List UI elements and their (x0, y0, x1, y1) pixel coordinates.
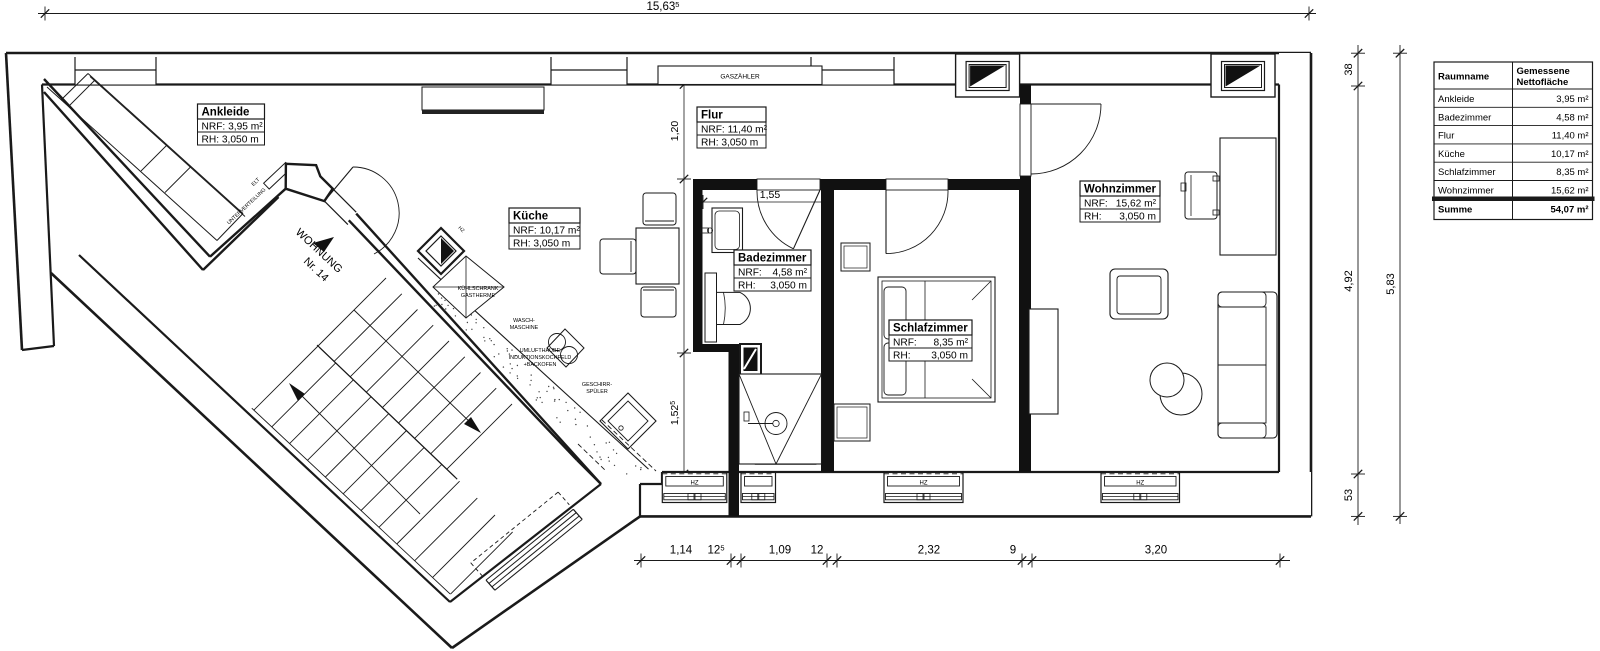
svg-text:Küche: Küche (513, 211, 548, 223)
svg-text:Wohnzimmer: Wohnzimmer (1084, 184, 1157, 196)
svg-text:+BACKOFEN: +BACKOFEN (524, 362, 557, 368)
svg-text:1,55: 1,55 (760, 189, 781, 201)
svg-text:Schlafzimmer: Schlafzimmer (893, 323, 968, 335)
svg-text:15,62 m²: 15,62 m² (1551, 186, 1589, 197)
svg-text:3,050 m: 3,050 m (1119, 212, 1156, 223)
svg-text:5,83: 5,83 (1385, 273, 1397, 294)
svg-text:NRF:: NRF: (893, 338, 917, 349)
svg-text:RH:: RH: (738, 281, 756, 292)
svg-text:Ankleide: Ankleide (202, 107, 250, 119)
svg-text:MASCHINE: MASCHINE (510, 325, 539, 331)
svg-text:38: 38 (1343, 63, 1355, 75)
svg-text:Raumname: Raumname (1438, 72, 1489, 83)
svg-text:53: 53 (1343, 489, 1355, 501)
svg-text:WASCH-: WASCH- (513, 318, 535, 324)
svg-text:15,62 m²: 15,62 m² (1116, 199, 1157, 210)
svg-text:RH: 3,050 m: RH: 3,050 m (513, 239, 570, 250)
svg-text:1,14: 1,14 (670, 545, 693, 557)
svg-text:UMLUFTHAUBE: UMLUFTHAUBE (520, 348, 561, 354)
svg-text:1,20: 1,20 (669, 121, 681, 142)
svg-text:2,32: 2,32 (918, 545, 940, 557)
svg-text:GESCHIRR-: GESCHIRR- (582, 382, 612, 388)
svg-text:HZ: HZ (920, 480, 928, 486)
svg-text:KÜHLSCHRANK: KÜHLSCHRANK (458, 285, 499, 292)
svg-text:Badezimmer: Badezimmer (738, 253, 807, 265)
svg-text:INDUKTIONSKOCHFELD: INDUKTIONSKOCHFELD (509, 355, 572, 361)
svg-text:HZ: HZ (691, 480, 699, 486)
svg-text:54,07 m²: 54,07 m² (1550, 204, 1588, 215)
svg-text:NRF: 3,95 m²: NRF: 3,95 m² (202, 122, 264, 133)
svg-text:15,635: 15,635 (647, 0, 680, 13)
svg-text:12: 12 (811, 545, 824, 557)
svg-text:Summe: Summe (1438, 204, 1472, 215)
svg-text:4,58 m²: 4,58 m² (772, 268, 807, 279)
svg-text:10,17 m²: 10,17 m² (1551, 149, 1589, 160)
svg-text:Flur: Flur (1438, 131, 1454, 142)
svg-text:3,95 m²: 3,95 m² (1556, 94, 1588, 105)
svg-text:NRF:: NRF: (1084, 199, 1108, 210)
svg-text:1,09: 1,09 (769, 545, 791, 557)
svg-text:8,35 m²: 8,35 m² (1556, 167, 1588, 178)
svg-text:Ankleide: Ankleide (1438, 94, 1474, 105)
svg-text:11,40 m²: 11,40 m² (1552, 131, 1589, 142)
svg-text:NRF:: NRF: (738, 268, 762, 279)
svg-text:4,58 m²: 4,58 m² (1556, 112, 1588, 123)
svg-text:GASTHERME: GASTHERME (461, 293, 496, 299)
svg-text:Wohnzimmer: Wohnzimmer (1438, 186, 1494, 197)
svg-text:Gemessene: Gemessene (1517, 66, 1570, 77)
svg-text:HZ: HZ (1136, 480, 1144, 486)
svg-text:Küche: Küche (1438, 149, 1465, 160)
svg-text:SPÜLER: SPÜLER (586, 388, 608, 395)
svg-text:8,35 m²: 8,35 m² (933, 338, 968, 349)
svg-text:RH: 3,050 m: RH: 3,050 m (202, 135, 259, 146)
svg-text:NRF: 11,40 m²: NRF: 11,40 m² (701, 125, 768, 136)
svg-text:Schlafzimmer: Schlafzimmer (1438, 167, 1496, 178)
svg-text:RH:: RH: (1084, 212, 1102, 223)
svg-text:3,20: 3,20 (1145, 545, 1167, 557)
svg-text:RH: 3,050 m: RH: 3,050 m (701, 138, 758, 149)
svg-text:9: 9 (1010, 545, 1016, 557)
svg-text:3,050 m: 3,050 m (770, 281, 807, 292)
svg-text:Badezimmer: Badezimmer (1438, 112, 1491, 123)
svg-text:3,050 m: 3,050 m (931, 351, 968, 362)
svg-text:RH:: RH: (893, 351, 911, 362)
svg-text:NRF: 10,17 m²: NRF: 10,17 m² (513, 226, 580, 237)
svg-text:4,92: 4,92 (1343, 270, 1355, 291)
svg-text:Nettofläche: Nettofläche (1517, 77, 1569, 88)
svg-text:Flur: Flur (701, 110, 723, 122)
svg-text:GASZÄHLER: GASZÄHLER (720, 73, 760, 81)
